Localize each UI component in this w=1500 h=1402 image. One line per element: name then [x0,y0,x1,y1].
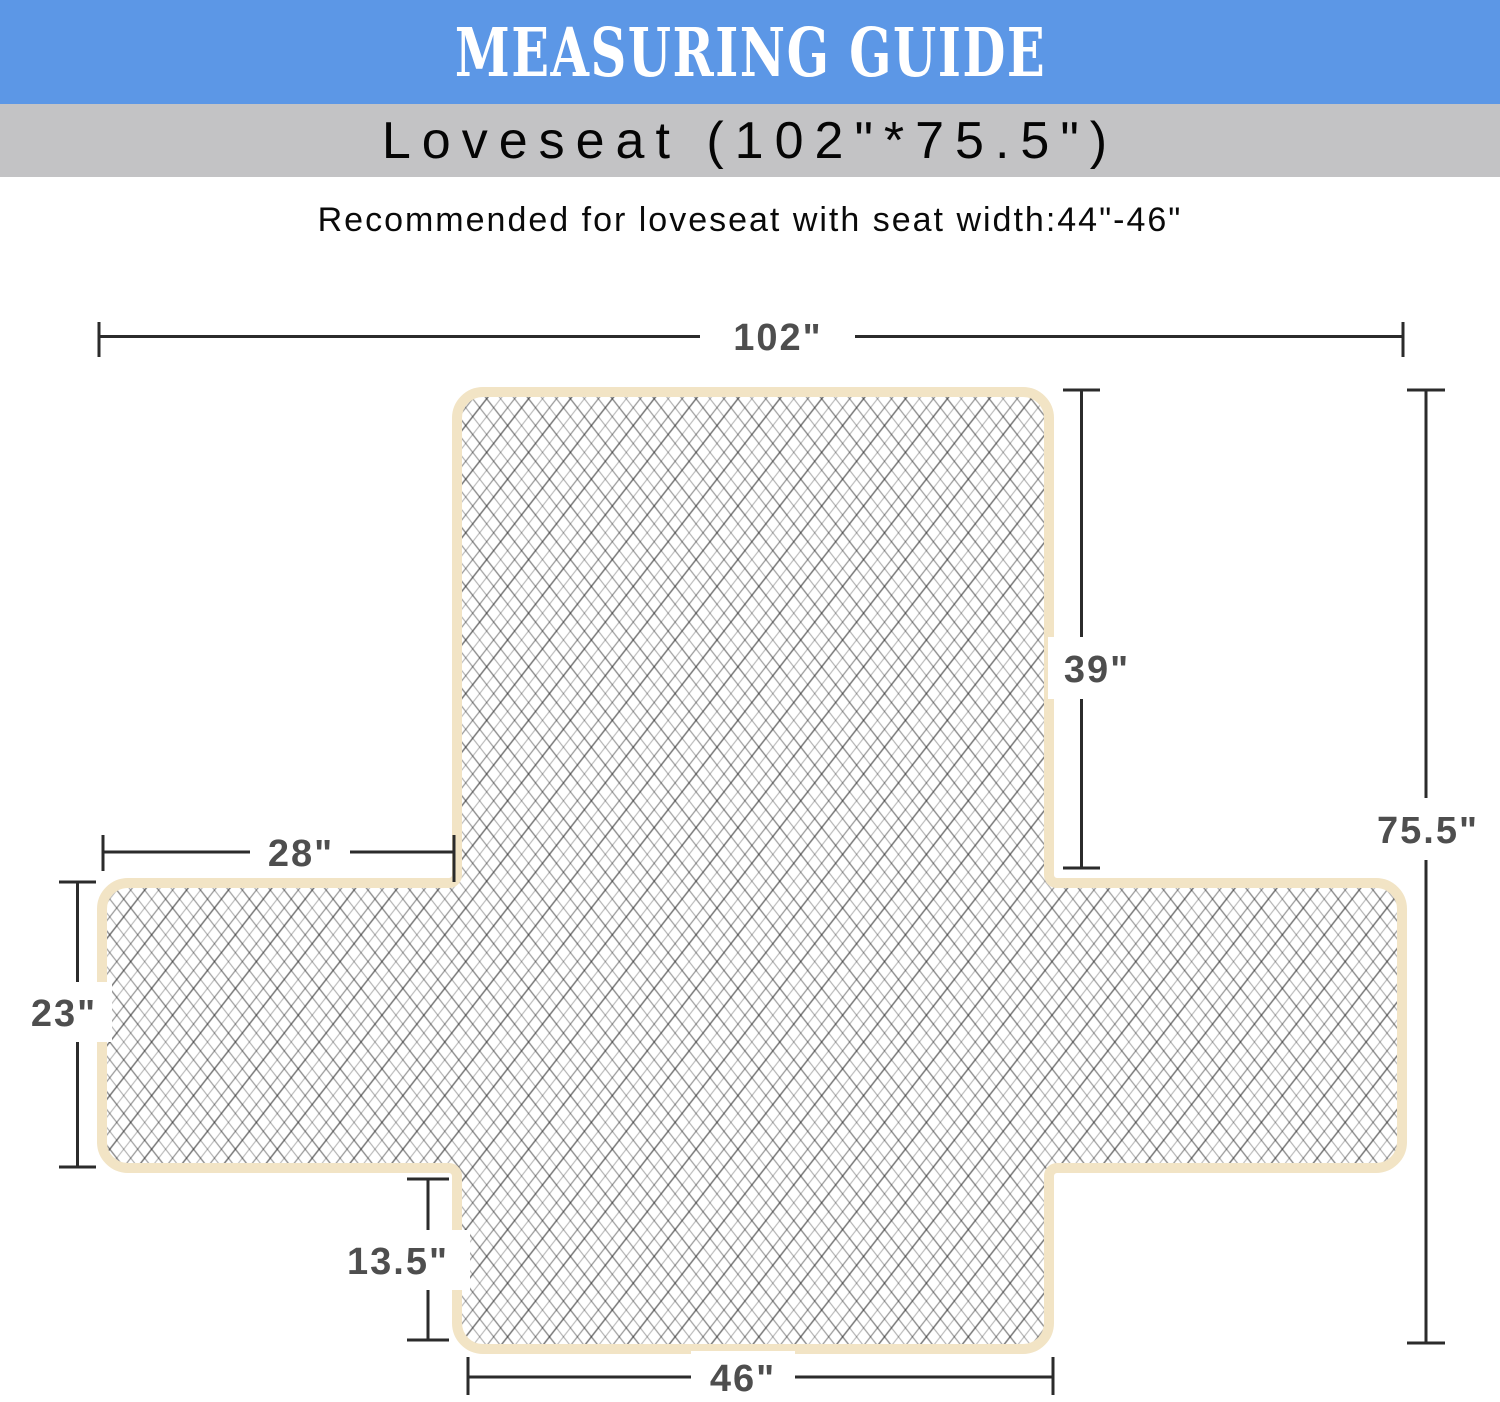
header-bar: MEASURING GUIDE [0,0,1500,104]
dim-back-height: 39" [1048,390,1144,868]
dim-front-drop-label: 13.5" [347,1241,449,1283]
dim-arm-width: 28" [103,824,454,882]
recommendation-note: Recommended for loveseat with seat width… [0,201,1500,240]
dim-front-drop: 13.5" [324,1179,470,1340]
dim-seat-width: 46" [468,1351,1053,1402]
subheader-bar: Loveseat (102"*75.5") [0,104,1500,177]
dim-back-height-label: 39" [1064,649,1130,691]
dim-total-length: 75.5" [1360,390,1496,1343]
size-title: Loveseat (102"*75.5") [382,111,1118,171]
page-title: MEASURING GUIDE [454,13,1045,92]
dim-arm-height-label: 23" [31,993,97,1035]
dim-seat-width-label: 46" [710,1358,776,1400]
dim-arm-width-label: 28" [268,833,334,875]
dim-total-length-label: 75.5" [1377,810,1479,852]
dim-total-width-label: 102" [733,317,822,359]
dim-total-width: 102" [99,310,1403,362]
